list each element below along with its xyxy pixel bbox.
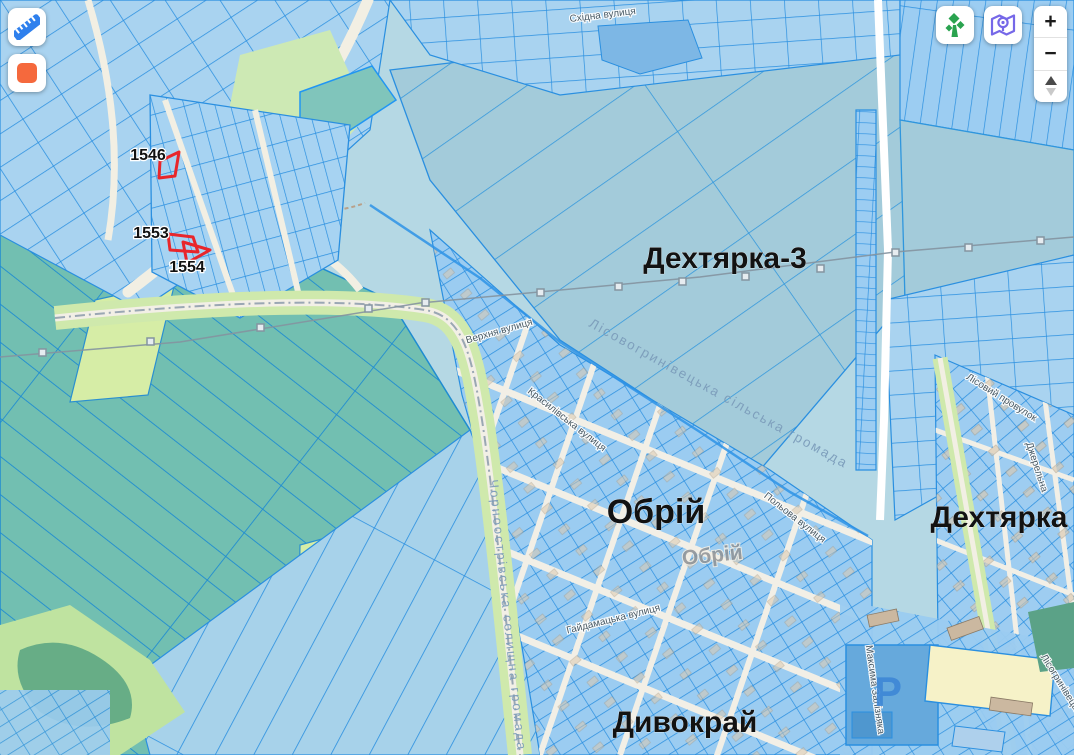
map-label-num-1554: 1554 <box>169 259 205 276</box>
zoom-in-button[interactable]: + <box>1034 6 1067 37</box>
map-label-dyvokray: Дивокрай <box>613 706 758 739</box>
map-label-obriy: Обрій <box>607 493 706 531</box>
green-tree-icon <box>942 12 968 38</box>
map-label-num-1546: 1546 <box>130 147 166 164</box>
map-label-num-1553: 1553 <box>133 225 169 242</box>
map-label-dekhtyarka3: Дехтярка-3 <box>643 242 807 275</box>
measure-button[interactable] <box>8 8 46 46</box>
map-label-parking-p: P <box>874 668 902 715</box>
compass-tilt-control[interactable] <box>1034 71 1067 102</box>
compass-arrows-icon <box>1044 75 1058 97</box>
zoom-out-button[interactable]: − <box>1034 38 1067 69</box>
map-pin-icon <box>989 12 1017 38</box>
nature-layer-button[interactable] <box>936 6 974 44</box>
legend-map-button[interactable] <box>984 6 1022 44</box>
map-application: Дехтярка-3ОбрійДехтяркаДивокрай154615531… <box>0 0 1074 755</box>
stop-square-icon <box>16 62 38 84</box>
record-stop-button[interactable] <box>8 54 46 92</box>
map-canvas[interactable]: Дехтярка-3ОбрійДехтяркаДивокрай154615531… <box>0 0 1074 755</box>
ruler-icon <box>14 14 40 40</box>
map-label-dekhtyarka: Дехтярка <box>931 501 1068 534</box>
zoom-control: + − <box>1034 6 1067 102</box>
